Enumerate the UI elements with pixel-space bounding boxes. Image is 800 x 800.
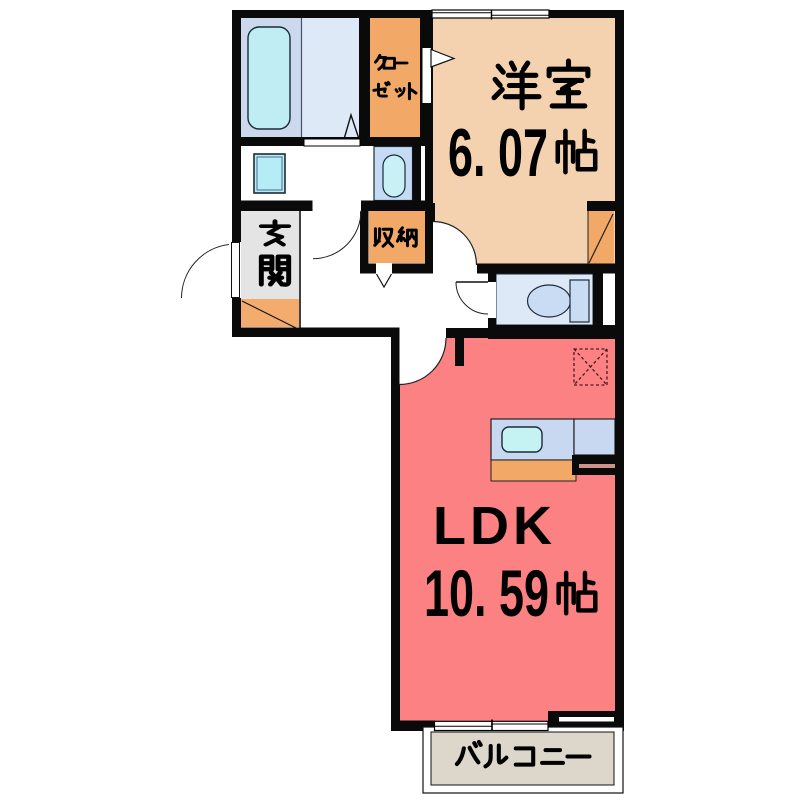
svg-text:6. 07: 6. 07 xyxy=(448,115,548,191)
svg-text:10. 59: 10. 59 xyxy=(424,556,549,630)
svg-text:LDK: LDK xyxy=(433,496,564,556)
